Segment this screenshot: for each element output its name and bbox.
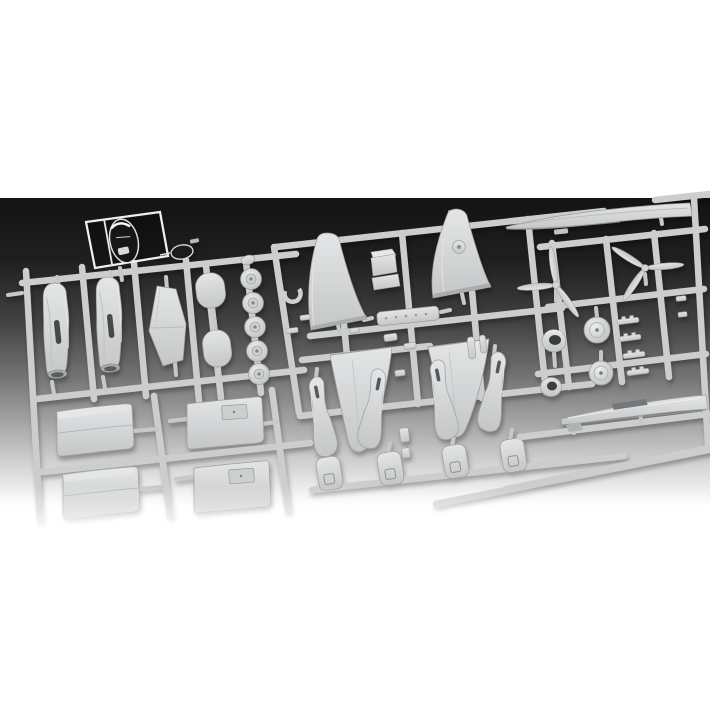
main-wheel-3 bbox=[245, 317, 266, 338]
wheel-disc-1 bbox=[584, 317, 610, 343]
gear-door-3 bbox=[441, 443, 470, 479]
cowl-ring-2 bbox=[541, 378, 562, 397]
cowl-ring-1 bbox=[542, 330, 566, 352]
main-wheel-5 bbox=[249, 364, 270, 385]
main-wheel-2 bbox=[243, 293, 264, 314]
cowl-panel-3 bbox=[187, 397, 264, 449]
small-box-part bbox=[371, 249, 397, 276]
product-photo bbox=[0, 0, 710, 710]
main-wheel-4 bbox=[247, 341, 268, 362]
photo-bottom-fade bbox=[0, 486, 710, 546]
wheel-disc-2 bbox=[589, 361, 613, 385]
cowl-panel-1 bbox=[57, 404, 134, 456]
hub-round-part bbox=[453, 241, 466, 254]
main-wheel-1 bbox=[241, 269, 262, 290]
model-kit-sprue-photo bbox=[0, 0, 710, 710]
gear-door-4 bbox=[499, 437, 528, 473]
gear-door-2 bbox=[376, 450, 405, 486]
